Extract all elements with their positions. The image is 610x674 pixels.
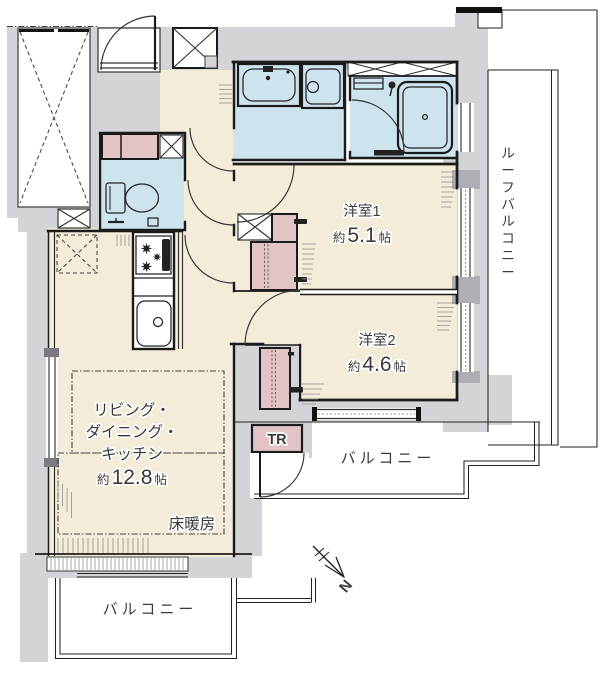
kitchen-counter: [133, 232, 183, 349]
floor-plan-canvas: N 洋室1 約5.1帖 洋室2 約4.6帖 リビング・ ダイニング・ キッチン …: [0, 0, 610, 674]
north-label: N: [336, 577, 356, 596]
washroom: [238, 64, 344, 108]
ldk-label-line3: キッチン: [101, 446, 163, 463]
floor-heating-label: 床暖房: [169, 515, 216, 533]
ldk-west-window: [44, 348, 59, 467]
balcony-right-label: バルコニー: [341, 450, 436, 467]
bathroom-window-band: [348, 62, 457, 76]
balcony-bottom-railing: [56, 578, 316, 659]
floor-plan: N 洋室1 約5.1帖 洋室2 約4.6帖 リビング・ ダイニング・ キッチン …: [0, 0, 610, 674]
pipe-shaft-top: [173, 28, 217, 68]
roof-balcony-label: ルーフバルコニー: [501, 146, 515, 280]
ldk-label-line1: リビング・: [93, 401, 171, 419]
elevator-shaft: [18, 28, 90, 207]
ldk-label-line2: ダイニング・: [85, 423, 178, 441]
balcony-bottom-label: バルコニー: [103, 601, 198, 618]
room2-name: 洋室2: [358, 332, 395, 349]
trunk-room-label: TR: [267, 432, 287, 448]
north-compass: N: [313, 546, 356, 596]
small-shaft-box: [58, 209, 90, 228]
room1-name: 洋室1: [343, 203, 380, 220]
